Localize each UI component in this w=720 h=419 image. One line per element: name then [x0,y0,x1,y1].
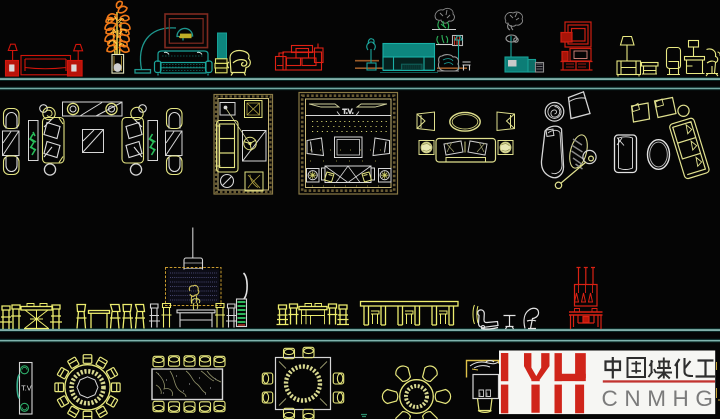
svg-text:T.V.: T.V. [21,384,33,393]
svg-text:CNMHG: CNMHG [602,386,720,411]
svg-text:T.V.: T.V. [343,109,354,116]
